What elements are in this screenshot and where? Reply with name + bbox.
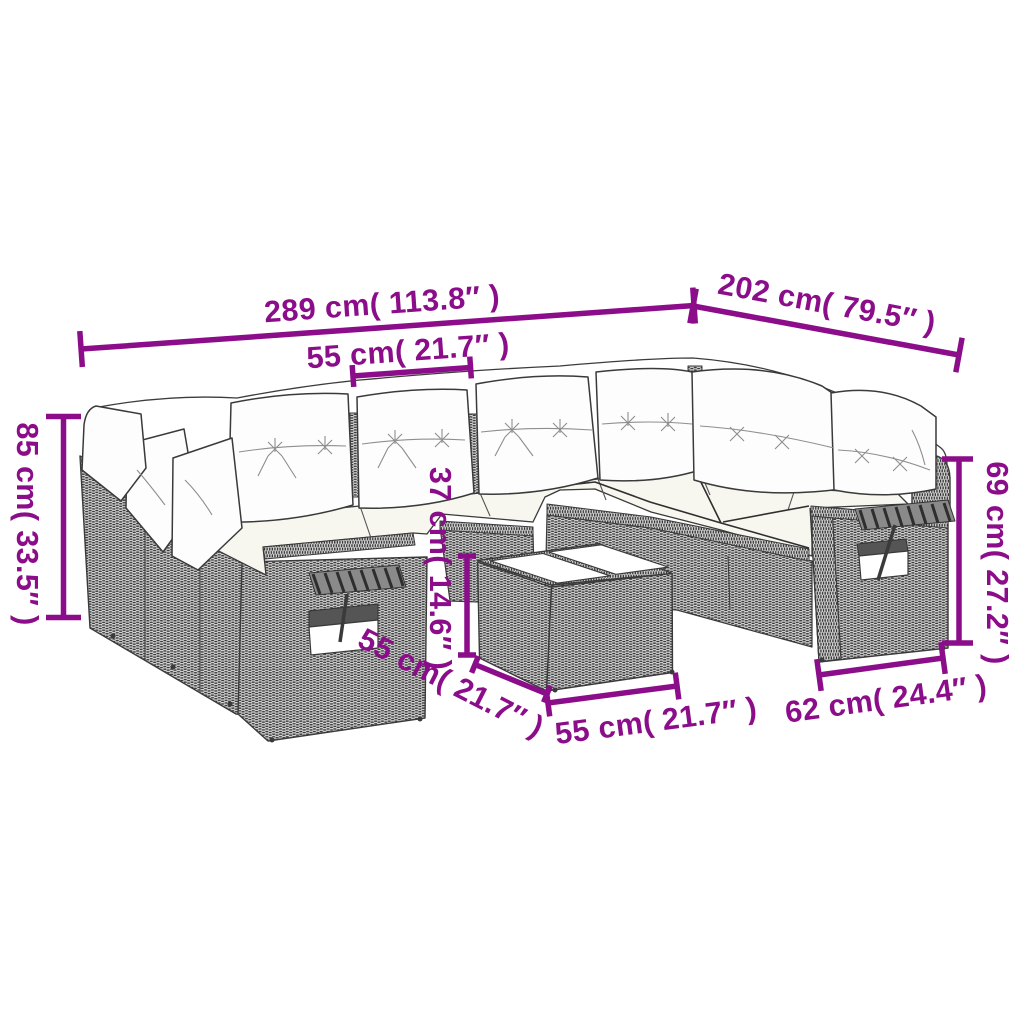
svg-text:37 cm( 14.6″ ): 37 cm( 14.6″ ) (423, 467, 457, 670)
svg-text:69 cm( 27.2″ ): 69 cm( 27.2″ ) (980, 461, 1014, 664)
svg-text:85 cm( 33.5″ ): 85 cm( 33.5″ ) (10, 422, 44, 625)
